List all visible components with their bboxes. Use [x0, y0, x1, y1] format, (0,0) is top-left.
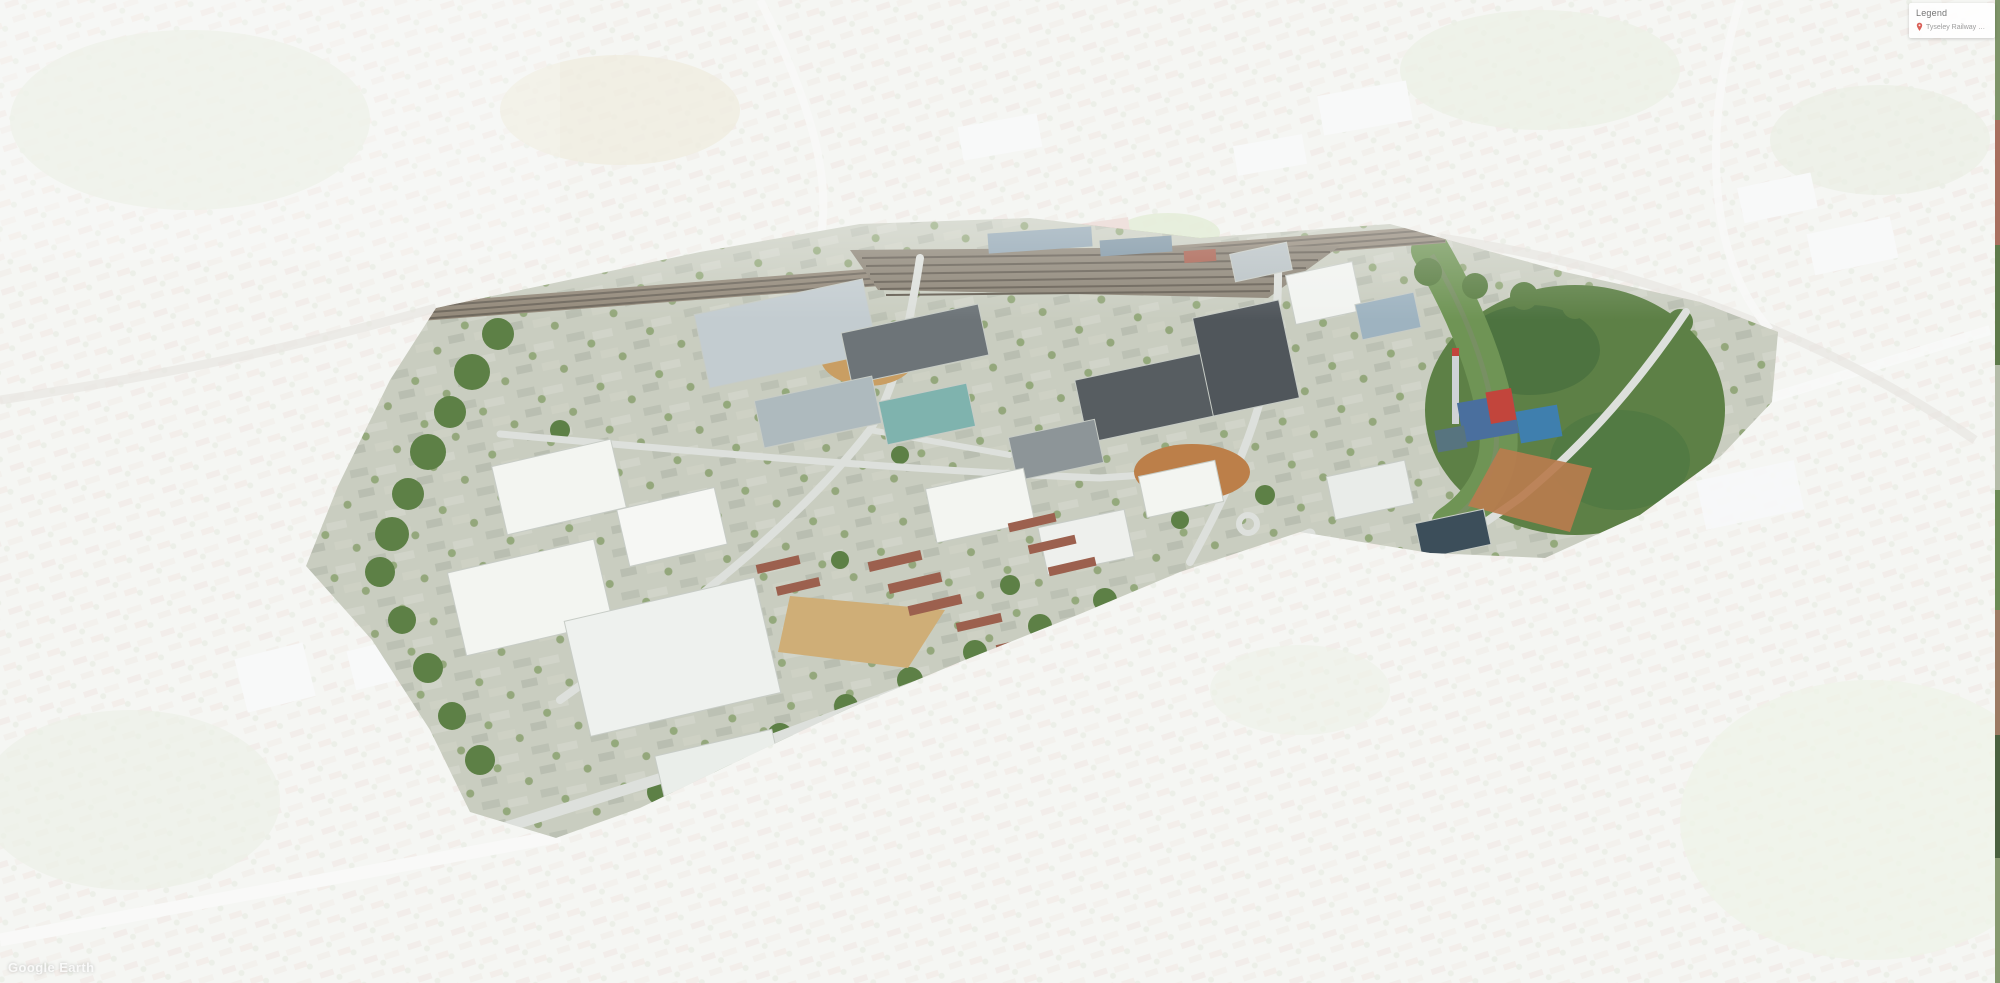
right-edge-unfaded-strip: [1995, 0, 2000, 983]
legend-item-label: Tyseley Railway Station: [1926, 23, 1988, 32]
map-pin-icon: [1916, 22, 1923, 32]
legend-panel: Legend Tyseley Railway Station: [1909, 3, 1995, 38]
aerial-map-canvas[interactable]: [0, 0, 2000, 983]
aerial-map[interactable]: [0, 0, 2000, 983]
legend-item[interactable]: Tyseley Railway Station: [1916, 22, 1988, 32]
corner-haze: [0, 0, 560, 260]
legend-title: Legend: [1916, 8, 1988, 19]
